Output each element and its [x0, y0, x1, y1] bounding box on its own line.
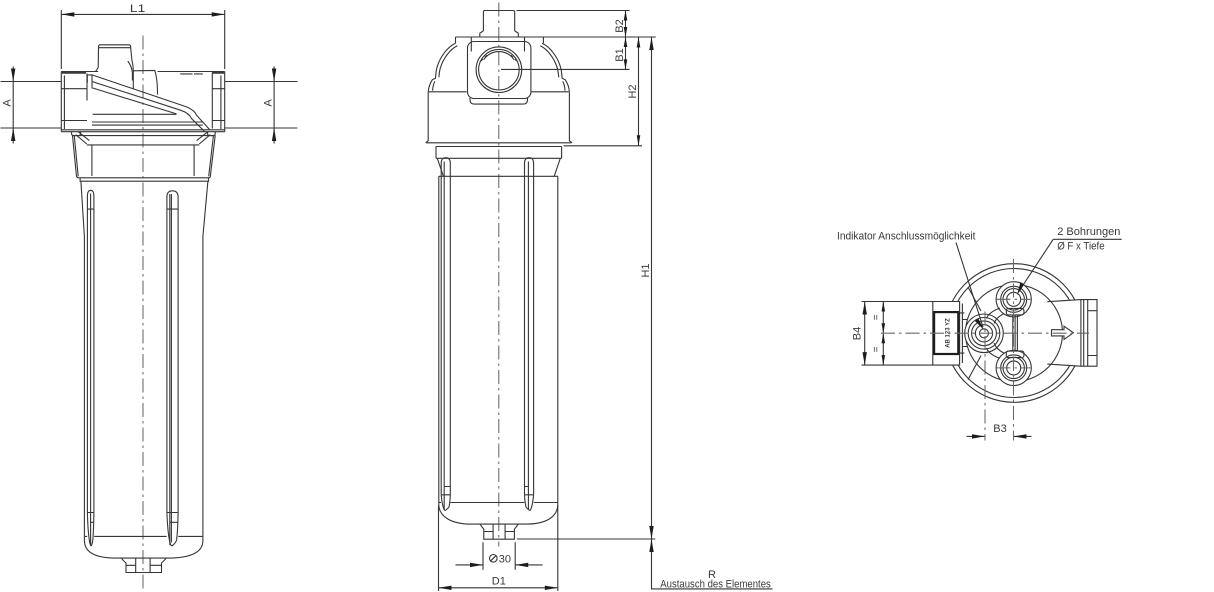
svg-text:Austausch des Elementes: Austausch des Elementes	[660, 578, 771, 590]
svg-text:D1: D1	[492, 576, 506, 588]
svg-text:B4: B4	[852, 327, 864, 340]
svg-text:B1: B1	[614, 48, 626, 61]
svg-text:=: =	[871, 314, 882, 320]
svg-text:Indikator Anschlussmöglichkeit: Indikator Anschlussmöglichkeit	[837, 231, 976, 243]
svg-text:H1: H1	[640, 263, 652, 277]
svg-text:H2: H2	[627, 84, 639, 98]
svg-text:B2: B2	[614, 19, 626, 32]
svg-text:=: =	[871, 346, 882, 352]
svg-text:2 Bohrungen: 2 Bohrungen	[1057, 226, 1120, 238]
svg-text:Ø F x Tiefe: Ø F x Tiefe	[1057, 240, 1104, 252]
svg-text:L1: L1	[130, 3, 146, 15]
svg-text:30: 30	[499, 553, 511, 565]
svg-text:B3: B3	[993, 423, 1006, 435]
svg-text:A: A	[263, 99, 275, 107]
svg-text:A: A	[2, 99, 14, 107]
